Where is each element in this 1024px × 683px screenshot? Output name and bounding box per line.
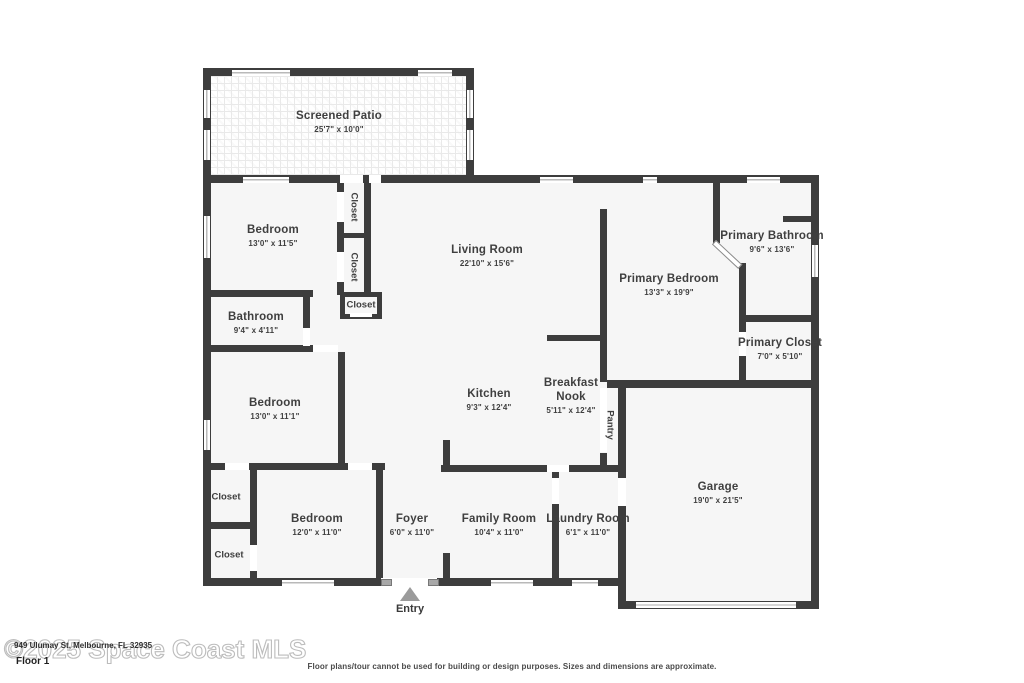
window xyxy=(418,70,452,76)
room-label-bedroom-3: Bedroom 12'0" x 11'0" xyxy=(291,513,343,537)
wall xyxy=(343,233,364,238)
wall xyxy=(203,290,313,297)
closet-label-vertical-2: Closet xyxy=(349,252,360,281)
wall xyxy=(203,345,315,352)
door-opening xyxy=(337,192,344,222)
window xyxy=(204,216,210,258)
window xyxy=(282,580,334,586)
window xyxy=(204,130,210,160)
entry-label: Entry xyxy=(396,603,424,615)
wall xyxy=(376,470,383,580)
door-opening xyxy=(303,328,310,346)
door-opening xyxy=(547,465,569,472)
window xyxy=(643,177,657,183)
window xyxy=(204,90,210,118)
wall xyxy=(600,465,622,472)
room-label-primary-bathroom: Primary Bathroom 9'6" x 13'6" xyxy=(720,230,824,254)
wall xyxy=(338,352,345,465)
door-opening xyxy=(618,478,626,506)
wall xyxy=(739,315,819,322)
wall xyxy=(443,553,450,580)
room-label-bedroom-1: Bedroom 13'0" x 11'5" xyxy=(247,224,299,248)
window xyxy=(232,70,290,76)
door-opening xyxy=(250,545,257,571)
entry-door-cap xyxy=(381,579,392,586)
room-label-kitchen: Kitchen 9'3" x 12'4" xyxy=(467,388,512,412)
window xyxy=(467,90,473,118)
closet-label-5: Closet xyxy=(214,550,243,561)
disclaimer-text: Floor plans/tour cannot be used for buil… xyxy=(0,662,1024,671)
wall xyxy=(739,263,746,317)
room-label-garage: Garage 19'0" x 21'5" xyxy=(693,481,743,505)
room-label-foyer: Foyer 6'0" x 11'0" xyxy=(390,513,435,537)
door-opening xyxy=(340,175,363,183)
door-opening xyxy=(348,463,372,470)
wall xyxy=(203,175,819,183)
room-label-bedroom-2: Bedroom 13'0" x 11'1" xyxy=(249,397,301,421)
door-opening xyxy=(225,463,249,470)
room-label-breakfast-nook: Breakfast Nook 5'11" x 12'4" xyxy=(534,377,608,415)
door-opening xyxy=(313,345,338,352)
closet-label-4: Closet xyxy=(211,492,240,503)
room-label-living-room: Living Room 22'10" x 15'6" xyxy=(451,244,523,268)
window xyxy=(243,177,289,183)
door-opening xyxy=(552,478,559,504)
wall xyxy=(203,522,250,529)
window xyxy=(747,177,780,183)
room-label-laundry-room: Laundry Room 6'1" x 11'0" xyxy=(546,513,630,537)
wall xyxy=(547,335,605,341)
wall xyxy=(713,183,720,243)
window xyxy=(204,420,210,450)
room-label-screened-patio: Screened Patio 25'7" x 10'0" xyxy=(296,110,382,134)
garage-door xyxy=(636,602,796,608)
floor-plan: Screened Patio 25'7" x 10'0" Bedroom 13'… xyxy=(0,0,1024,683)
window xyxy=(467,130,473,160)
closet-door-opening xyxy=(350,313,372,317)
pantry-label: Pantry xyxy=(605,410,616,440)
door-opening xyxy=(369,175,381,183)
window xyxy=(572,580,598,586)
door-opening xyxy=(337,252,344,282)
wall xyxy=(607,380,819,388)
entry-arrow-icon xyxy=(400,587,420,601)
closet-label-box: Closet xyxy=(346,300,375,311)
window xyxy=(491,580,533,586)
address-text: 949 Ulumay St, Melbourne, FL 32935 xyxy=(14,641,152,650)
room-label-family-room: Family Room 10'4" x 11'0" xyxy=(462,513,536,537)
wall xyxy=(441,465,549,472)
room-label-primary-closet: Primary Closet 7'0" x 5'10" xyxy=(738,337,822,361)
closet-label-vertical-1: Closet xyxy=(349,192,360,221)
window xyxy=(540,177,573,183)
room-label-primary-bedroom: Primary Bedroom 13'3" x 19'9" xyxy=(619,273,719,297)
wall xyxy=(600,209,607,382)
wall xyxy=(783,216,819,222)
entry-door-cap xyxy=(428,579,439,586)
room-label-bathroom: Bathroom 9'4" x 4'11" xyxy=(228,311,284,335)
